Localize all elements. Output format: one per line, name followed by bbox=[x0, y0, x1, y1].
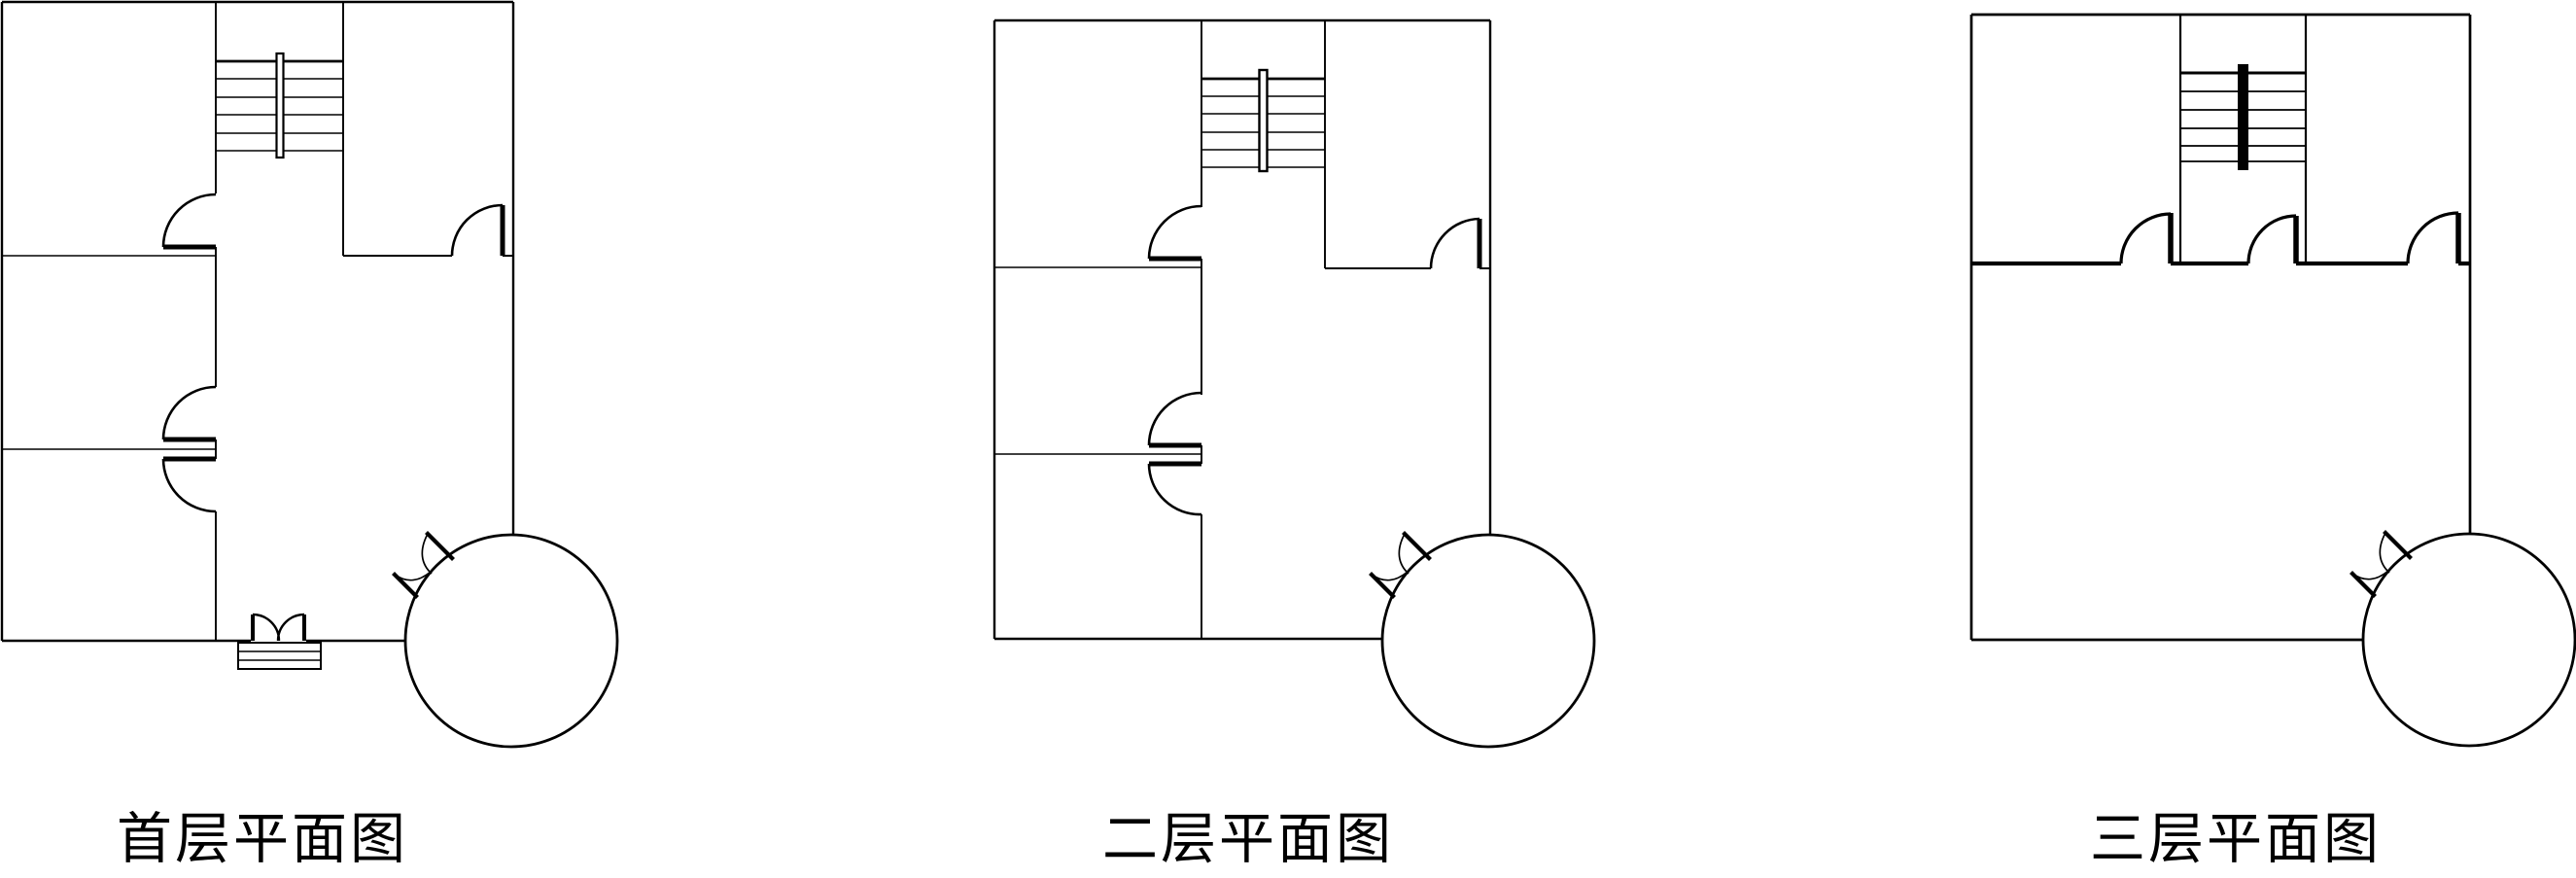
drawing-canvas: 首层平面图 二层平面图 三层平面图 bbox=[0, 0, 2576, 878]
door-arc bbox=[1149, 206, 1201, 259]
door-arc bbox=[1149, 464, 1201, 514]
door-arc bbox=[163, 194, 216, 247]
floor-plan-third bbox=[1971, 15, 2575, 746]
tree-symbol bbox=[395, 534, 617, 747]
doors bbox=[163, 194, 503, 511]
doors bbox=[1149, 206, 1479, 514]
floor-plans-svg bbox=[0, 0, 2576, 878]
doors bbox=[2121, 213, 2458, 263]
door-arc bbox=[253, 615, 304, 641]
entrance-steps bbox=[238, 643, 321, 669]
stair-handrail bbox=[1260, 70, 1268, 171]
plan-title-third: 三层平面图 bbox=[2041, 811, 2430, 869]
door-arc bbox=[163, 459, 216, 511]
staircase bbox=[2180, 65, 2306, 169]
stair-handrail bbox=[2239, 65, 2247, 169]
entrance-double-door bbox=[238, 615, 321, 669]
door-arc bbox=[163, 387, 216, 439]
door-arc bbox=[2408, 213, 2458, 263]
stair-handrail bbox=[277, 53, 284, 158]
staircase bbox=[216, 53, 343, 158]
tree-symbol bbox=[1372, 534, 1594, 747]
outer-walls bbox=[1971, 15, 2470, 640]
floor-plan-second bbox=[994, 20, 1594, 747]
door-arc bbox=[1431, 219, 1479, 268]
room-divider-walls bbox=[994, 267, 1201, 454]
plan-title-first: 首层平面图 bbox=[68, 811, 457, 869]
door-arc bbox=[452, 205, 503, 256]
tree-symbol bbox=[2352, 533, 2575, 746]
room-divider-walls bbox=[2, 256, 216, 449]
floor-plan-first bbox=[2, 2, 617, 747]
door-arc bbox=[2121, 214, 2171, 263]
door-arc bbox=[2248, 216, 2296, 263]
plan-title-second: 二层平面图 bbox=[1054, 811, 1443, 869]
staircase bbox=[1202, 70, 1325, 171]
door-arc bbox=[1149, 393, 1201, 445]
